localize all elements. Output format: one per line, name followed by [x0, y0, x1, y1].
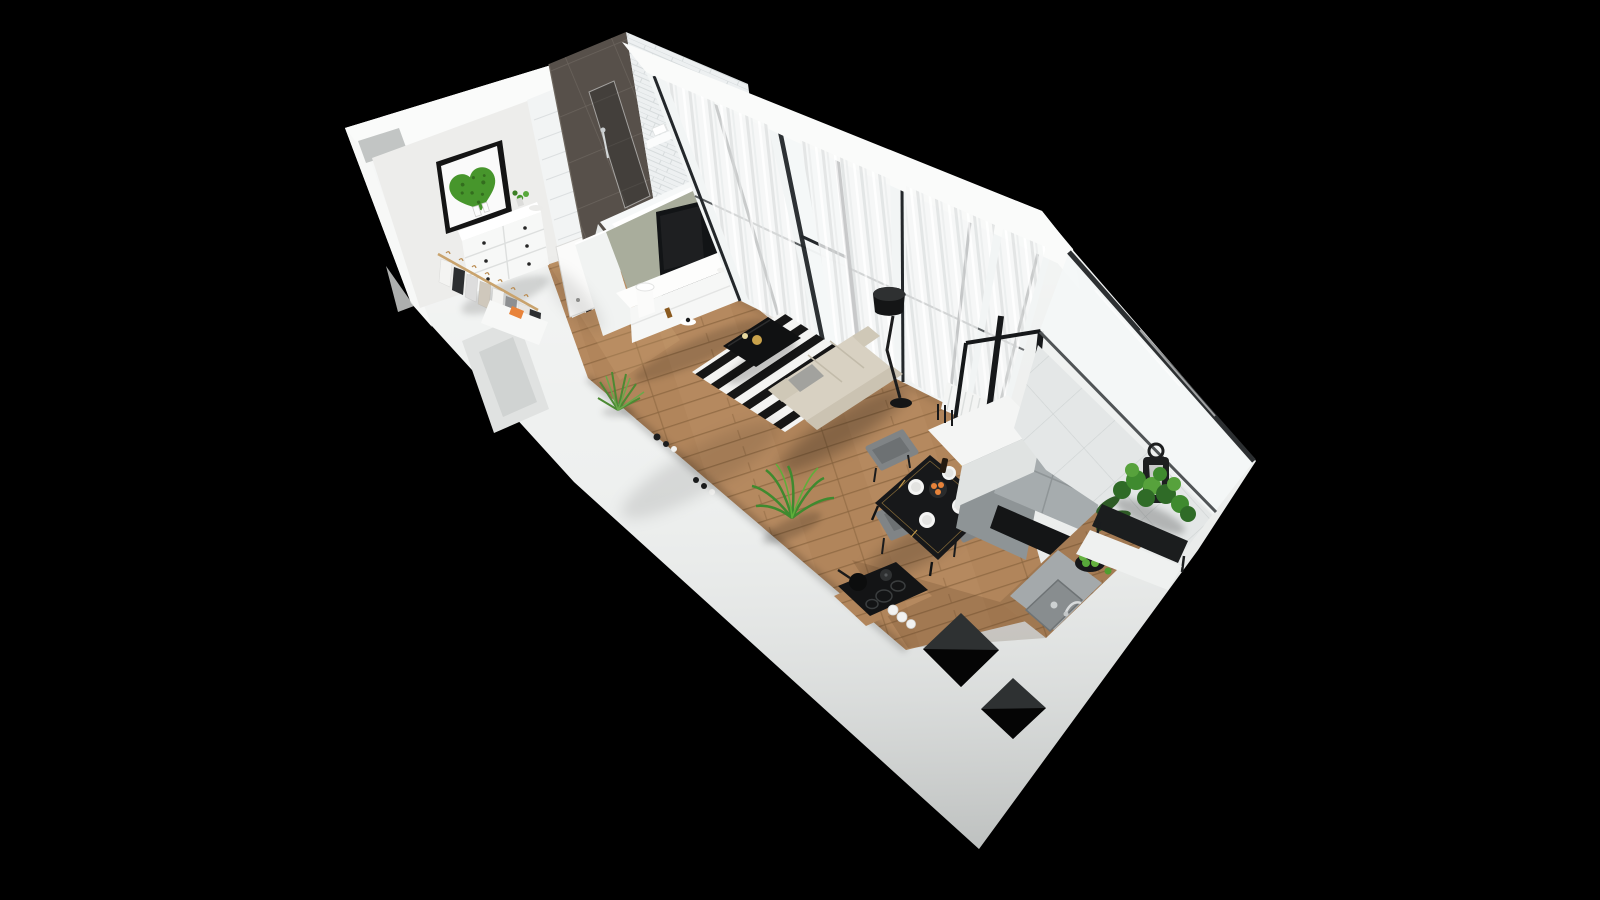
candle	[742, 333, 748, 339]
render-canvas	[0, 0, 1600, 900]
drain	[1051, 602, 1058, 609]
tv-screen-glare	[660, 206, 704, 270]
floor-plan-3d-render	[0, 0, 1600, 900]
pan	[849, 573, 867, 591]
black-cup	[686, 318, 690, 322]
table-lamp	[636, 283, 655, 318]
gold-cup	[752, 335, 762, 345]
